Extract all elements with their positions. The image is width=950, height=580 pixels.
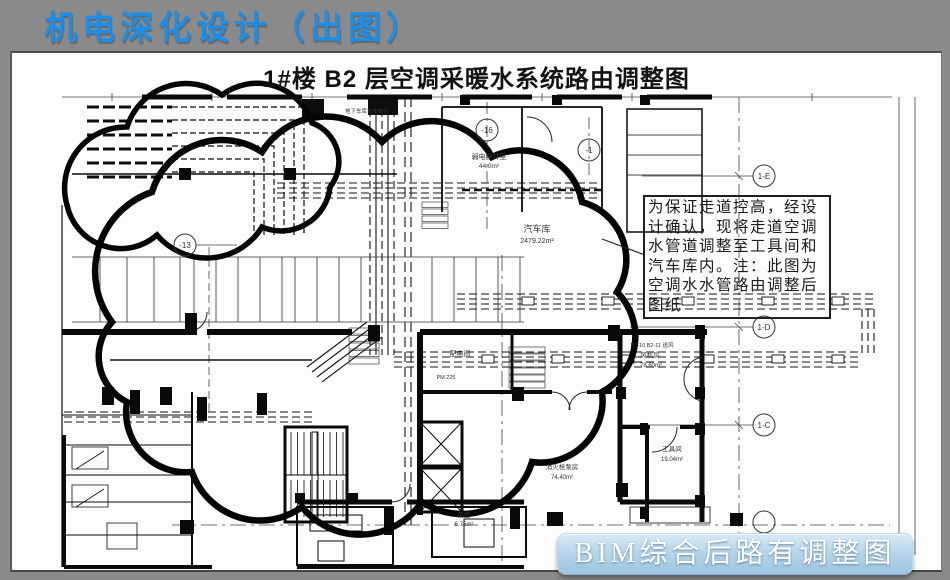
room-area-pump-room: 74.40m² [551, 475, 573, 481]
svg-text:-16: -16 [481, 126, 493, 135]
room-label-fan-room: 风机房 [640, 350, 660, 359]
annotation-line: 图纸 [648, 296, 826, 316]
room-area-front-room: 6.75m² [455, 522, 474, 528]
grid-bubble: -16 [476, 119, 498, 141]
room-label-weak-power: 弱电电井室 [472, 152, 507, 161]
room-area-tool-room: 19.04m² [661, 457, 683, 463]
slide-title: 机电深化设计（出图） [44, 1, 424, 49]
revision-cloud-large [95, 117, 635, 535]
svg-text:1-D: 1-D [758, 323, 771, 332]
room-code-power-room: PM.225 [437, 375, 456, 381]
room-area-fan-room: 78.60m² [640, 363, 662, 369]
annotation-line: 汽车库内。注：此图为 [648, 257, 826, 277]
grid-bubbles: -16 -1 -13 1-E 1-D 1-C [174, 119, 775, 533]
grid-bubble: 1-C [753, 414, 775, 436]
drawing-title: 1#楼 B2 层空调采暖水系统路由调整图 [12, 59, 941, 94]
parking-stalls [72, 257, 524, 322]
room-label-front-room: 前室 [458, 510, 472, 519]
svg-text:-1: -1 [585, 146, 593, 155]
drawing-panel: -16 -1 -13 1-E 1-D 1-C 汽车库 2479.22m² 弱电电… [10, 51, 942, 572]
room-label-garage: 汽车库 [523, 223, 550, 234]
room-label-pump-room: 消火栓泵房 [546, 462, 579, 471]
room-area-weak-power: 44.0m² [479, 163, 500, 170]
annotation-line: 为保证走道控高，经设 [648, 198, 826, 218]
pipe-tag-stacks [349, 202, 545, 388]
room-area-garage: 2479.22m² [520, 238, 554, 245]
room-label-power-room: 配电间 [450, 349, 471, 358]
room-tag-fan-room: B2-10 B2-11 送风 [630, 341, 674, 349]
pipe-hatch-topleft [87, 99, 324, 235]
svg-text:1-E: 1-E [758, 172, 770, 181]
grid-bubble: 1-D [753, 316, 775, 338]
annotation-line: 水管道调整至工具间和 [648, 237, 826, 257]
annotation-box: 为保证走道控高，经设 计确认，现将走道空调 水管道调整至工具间和 汽车库内。注：… [643, 195, 831, 319]
annotation-line: 空调水水管路由调整后 [648, 276, 826, 296]
svg-text:1-C: 1-C [758, 421, 771, 430]
label-charging-area: 地下车库充电桩区 [345, 107, 390, 115]
presentation-slide: 机电深化设计（出图） [0, 0, 950, 580]
room-label-tool-room: 工具间 [662, 445, 682, 453]
caption-banner: BIM综合后路有调整图 [557, 533, 913, 575]
svg-text:-13: -13 [179, 241, 191, 250]
grid-bubble [753, 511, 775, 533]
grid-bubble: 1-E [753, 165, 775, 187]
elevator-core [420, 422, 462, 512]
annotation-line: 计确认，现将走道空调 [648, 218, 826, 238]
